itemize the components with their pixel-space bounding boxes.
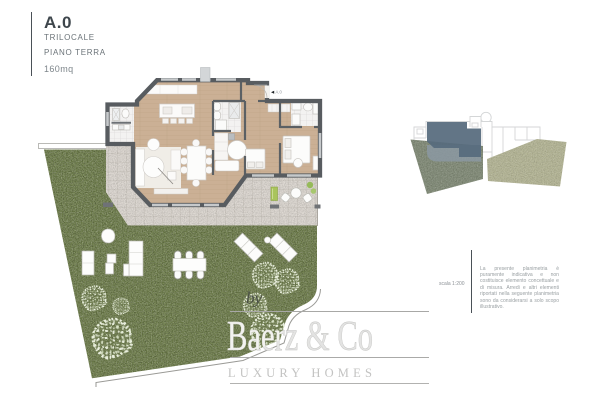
svg-text:LUXURY HOMES: LUXURY HOMES xyxy=(228,366,376,380)
svg-text:by: by xyxy=(246,289,263,308)
svg-text:A.0: A.0 xyxy=(276,90,283,95)
